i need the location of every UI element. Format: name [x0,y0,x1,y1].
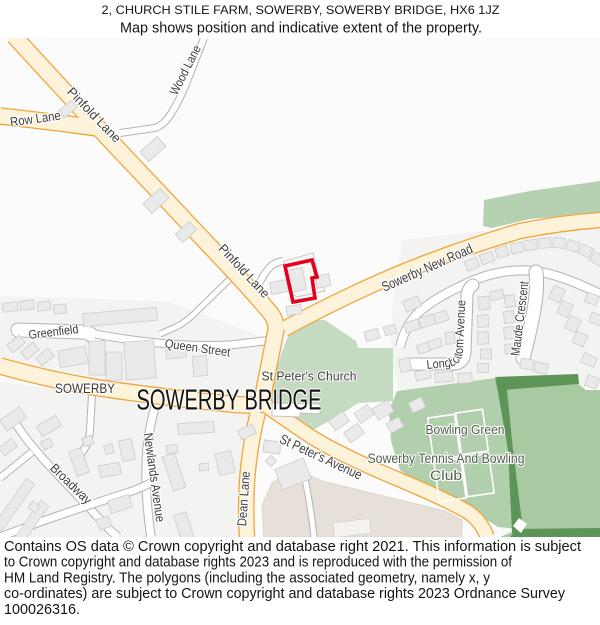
svg-text:Map shows position and indicat: Map shows position and indicative extent… [120,21,482,37]
svg-text:2, CHURCH STILE FARM, SOWERBY,: 2, CHURCH STILE FARM, SOWERBY, SOWERBY B… [102,3,500,17]
svg-text:Club: Club [430,468,462,483]
svg-text:Sowerby Tennis And Bowling: Sowerby Tennis And Bowling [368,451,525,466]
svg-text:St Peter's Church: St Peter's Church [262,369,357,384]
svg-text:Contains OS data © Crown copyr: Contains OS data © Crown copyright and d… [4,538,582,555]
svg-text:HM Land Registry. The polygons: HM Land Registry. The polygons (includin… [4,569,490,586]
svg-text:SOWERBY: SOWERBY [55,380,116,396]
svg-text:SOWERBY BRIDGE: SOWERBY BRIDGE [137,385,322,417]
svg-text:to Crown copyright and databas: to Crown copyright and database rights 2… [4,554,513,571]
svg-text:100026316.: 100026316. [4,601,80,618]
svg-text:Bowling Green: Bowling Green [426,423,505,437]
svg-text:co-ordinates) are subject to C: co-ordinates) are subject to Crown copyr… [4,585,565,602]
